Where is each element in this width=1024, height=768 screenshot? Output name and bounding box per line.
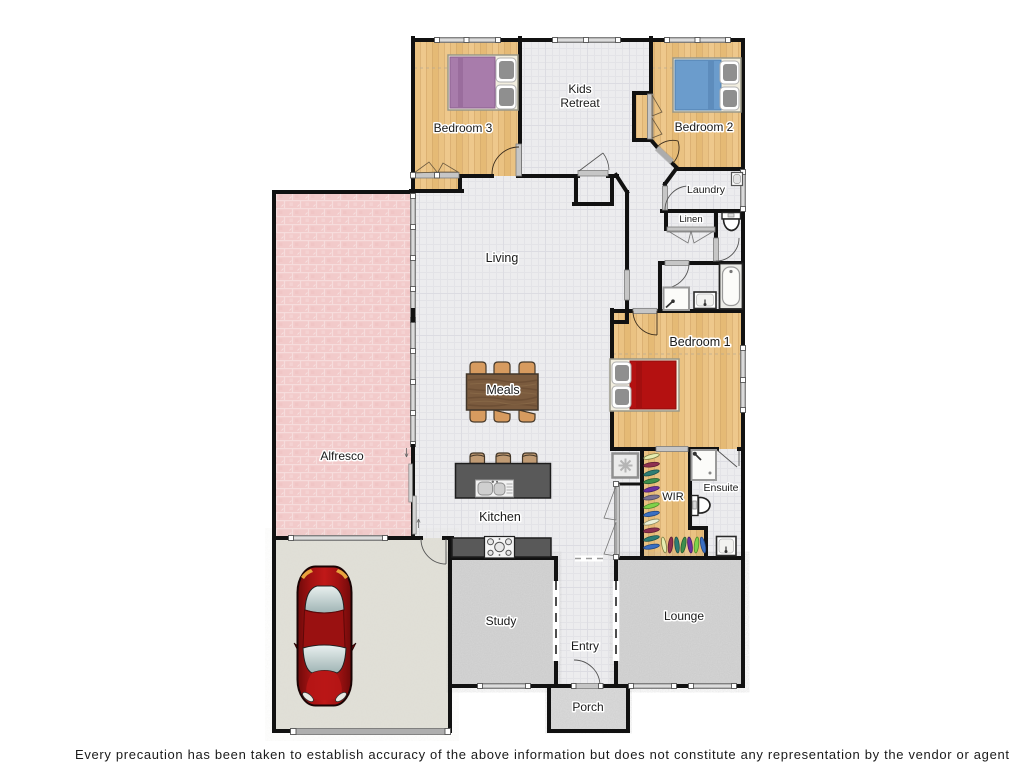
svg-text:Porch: Porch xyxy=(572,700,603,714)
svg-text:WIR: WIR xyxy=(662,491,683,503)
svg-text:Bedroom 2: Bedroom 2 xyxy=(675,120,734,134)
svg-text:Bedroom 3: Bedroom 3 xyxy=(434,121,493,135)
svg-text:Laundry: Laundry xyxy=(687,184,726,196)
svg-text:Study: Study xyxy=(486,614,517,628)
svg-text:Lounge: Lounge xyxy=(664,609,704,623)
svg-text:Bedroom 1: Bedroom 1 xyxy=(669,335,730,349)
svg-text:Every precaution has been take: Every precaution has been taken to estab… xyxy=(75,747,1009,762)
svg-text:Kids: Kids xyxy=(568,82,591,96)
svg-text:Meals: Meals xyxy=(486,383,519,397)
svg-text:Kitchen: Kitchen xyxy=(479,510,521,524)
svg-text:Alfresco: Alfresco xyxy=(320,449,364,463)
svg-text:Living: Living xyxy=(486,251,519,265)
svg-text:Retreat: Retreat xyxy=(560,96,600,110)
svg-text:Entry: Entry xyxy=(571,639,599,653)
svg-text:Linen: Linen xyxy=(679,214,702,225)
svg-text:Ensuite: Ensuite xyxy=(703,482,738,494)
